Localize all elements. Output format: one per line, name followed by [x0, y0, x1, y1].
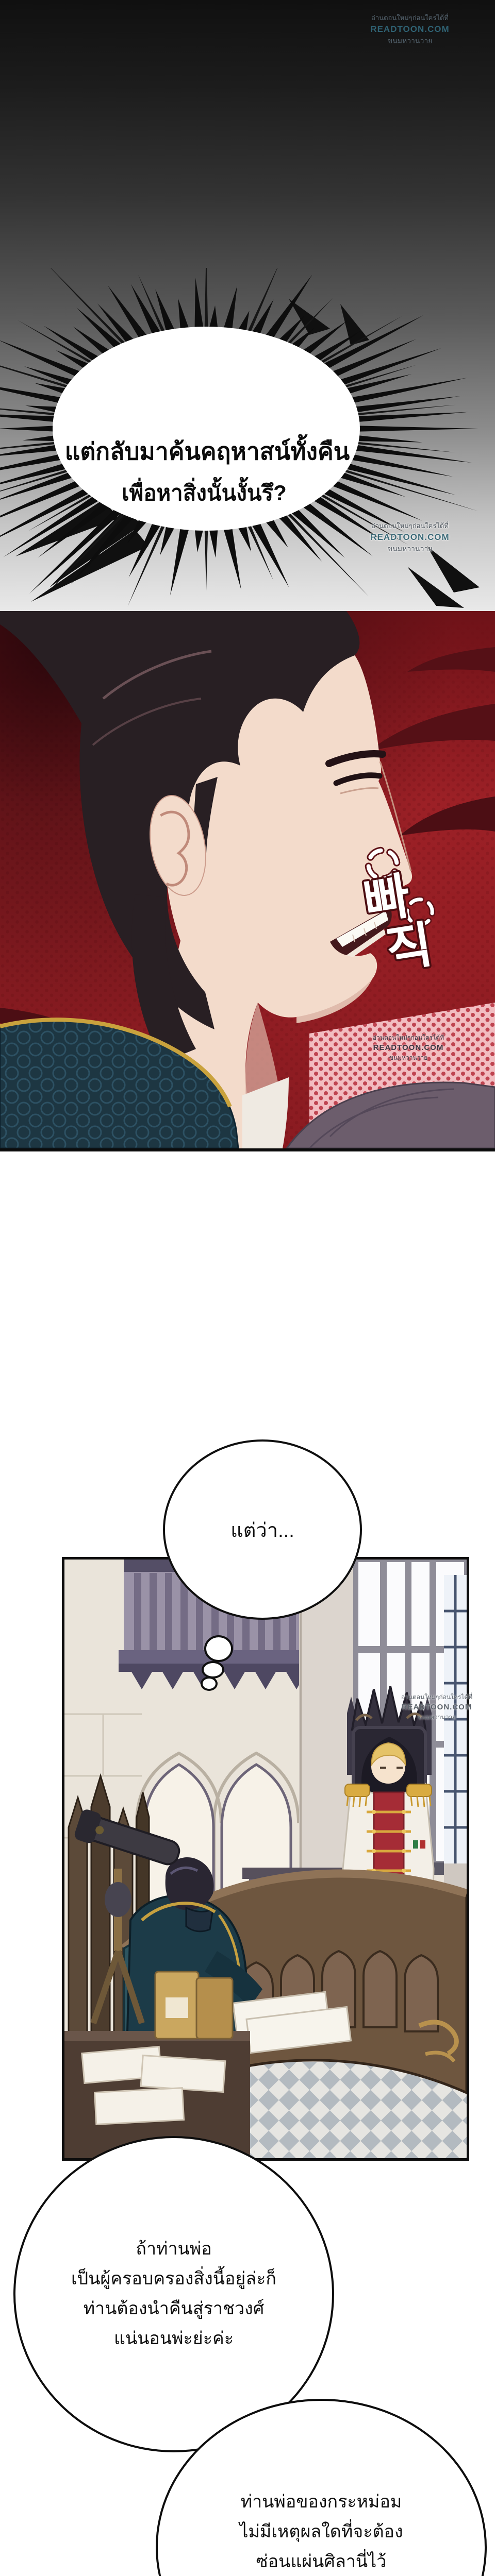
speech1-line4: แน่นอนพ่ะย่ะค่ะ: [71, 2324, 276, 2354]
speech2-line1: ท่านพ่อของกระหม่อม: [239, 2487, 403, 2517]
watermark-site: READTOON.COM: [325, 23, 495, 36]
svg-text:직: 직: [383, 917, 436, 979]
watermark-line1: อ่านตอนใหม่ๆก่อนใครได้ที่: [357, 1033, 460, 1042]
webtoon-page: อ่านตอนใหม่ๆก่อนใครได้ที่ READTOON.COM ข…: [0, 0, 495, 2576]
thought-trail-oval-small: [201, 1676, 218, 1691]
watermark-line3: ขนมหวานวาย: [325, 544, 495, 554]
thought-trail-oval-large: [204, 1635, 233, 1662]
watermark-scene: อ่านตอนใหม่ๆก่อนใครได้ที่ READTOON.COM ข…: [383, 1693, 491, 1722]
thought-trail-oval-medium: [202, 1661, 224, 1679]
burst-text-line1: แต่กลับมาค้นคฤหาสน์ทั้งคืน: [65, 433, 350, 470]
watermark-site: READTOON.COM: [325, 531, 495, 544]
speech1-line1: ถ้าท่านพ่อ: [71, 2234, 276, 2264]
panel-throne-room: [62, 1557, 469, 2161]
speech1-line3: ท่านต้องนำคืนสู่ราชวงศ์: [71, 2294, 276, 2324]
watermark-line1: อ่านตอนใหม่ๆก่อนใครได้ที่: [325, 13, 495, 23]
watermark-line3: ขนมหวานวาย: [357, 1054, 460, 1062]
speech2-line3: ซ่อนแผ่นศิลานี่ไว้: [239, 2547, 403, 2576]
speech1-line2: เป็นผู้ครอบครองสิ่งนี้อยู่ล่ะก็: [71, 2264, 276, 2294]
watermark-mid: อ่านตอนใหม่ๆก่อนใครได้ที่ READTOON.COM ข…: [325, 521, 495, 554]
angry-man-illustration: 빠 직: [0, 611, 495, 1148]
watermark-line1: อ่านตอนใหม่ๆก่อนใครได้ที่: [383, 1693, 491, 1702]
burst-text-line2: เพื่อหาสิ่งนั้นงั้นรึ?: [122, 476, 287, 510]
thought-bubble: แต่ว่า...: [163, 1439, 362, 1620]
watermark-panel: อ่านตอนใหม่ๆก่อนใครได้ที่ READTOON.COM ข…: [357, 1033, 460, 1063]
watermark-line3: ขนมหวานวาย: [325, 36, 495, 46]
panel-angry-man: 빠 직: [0, 611, 495, 1151]
watermark-line1: อ่านตอนใหม่ๆก่อนใครได้ที่: [325, 521, 495, 531]
watermark-line3: ขนมหวานวาย: [383, 1713, 491, 1722]
speech2-line2: ไม่มีเหตุผลใดที่จะต้อง: [239, 2517, 403, 2547]
watermark-site: READTOON.COM: [357, 1042, 460, 1054]
throne-room-illustration: [64, 1560, 467, 2158]
watermark-site: READTOON.COM: [383, 1702, 491, 1713]
thought-bubble-text: แต่ว่า...: [230, 1514, 294, 1546]
watermark-top: อ่านตอนใหม่ๆก่อนใครได้ที่ READTOON.COM ข…: [325, 13, 495, 46]
